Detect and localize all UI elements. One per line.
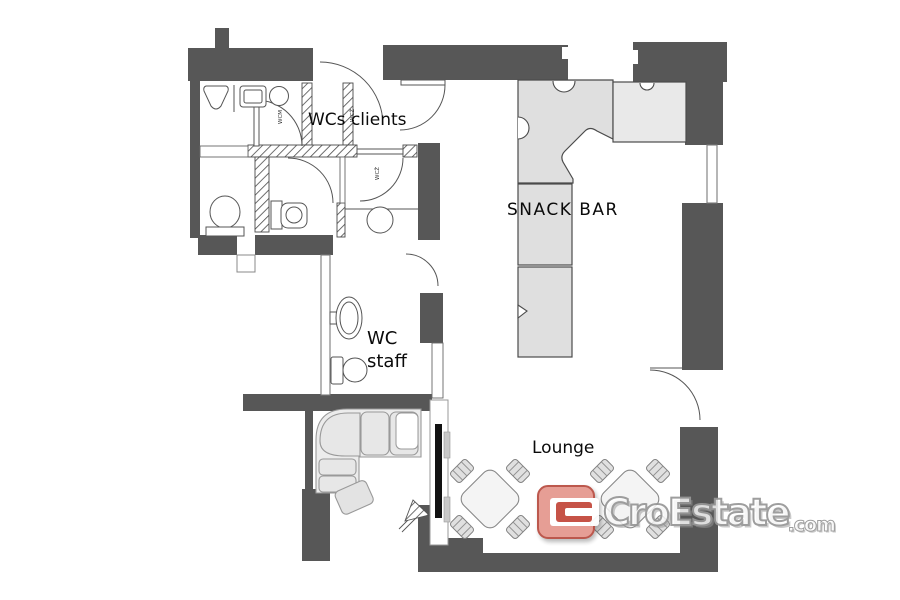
- toilet-tank: [331, 357, 343, 384]
- wall: [188, 48, 313, 81]
- wall: [477, 553, 718, 572]
- wall: [682, 203, 723, 370]
- counter-right-section: [613, 82, 686, 142]
- round-sink-icon: [367, 207, 393, 233]
- wall: [383, 45, 568, 80]
- window: [707, 145, 717, 203]
- sofa-cushion: [319, 459, 356, 475]
- door-arc: [288, 158, 333, 203]
- wall: [215, 28, 229, 50]
- label-snack-bar: SNACK BAR: [507, 200, 619, 220]
- label-wc-staff-line1: WC: [367, 327, 407, 350]
- counter-column-upper: [518, 184, 572, 265]
- toilet-tank: [271, 201, 282, 229]
- label-wc-staff: WC staff: [367, 327, 407, 373]
- washbasin-bowl: [244, 90, 262, 103]
- wall: [633, 42, 727, 82]
- label-lounge: Lounge: [532, 438, 594, 458]
- door-leaf: [357, 149, 403, 154]
- floor-plan-image: WCM WCŽ WCŽ WCs clients SNACK BAR WC sta…: [0, 0, 900, 600]
- wall: [305, 411, 313, 489]
- urinal-icon: [204, 86, 229, 109]
- wc-staff-fixtures: [330, 297, 367, 384]
- toilet-icon: [210, 196, 240, 228]
- wall: [198, 235, 333, 255]
- wall: [190, 78, 200, 238]
- glass-partition: [430, 400, 450, 545]
- shaft-box: [237, 255, 255, 272]
- dining-table-set-1: [449, 458, 530, 539]
- wall: [418, 538, 483, 572]
- counter-top-section: [518, 80, 613, 183]
- watermark-tld-text: .com: [788, 516, 835, 535]
- wall: [420, 293, 443, 343]
- croestate-watermark: CroEstate .com: [537, 484, 835, 540]
- sofa-cushion: [361, 412, 389, 455]
- door-arc: [650, 370, 700, 420]
- toilet-bowl: [286, 207, 302, 223]
- wall: [418, 143, 440, 240]
- watermark-brand-text: CroEstate: [603, 494, 789, 531]
- side-table: [396, 413, 418, 449]
- door-arc: [360, 158, 403, 201]
- wall: [302, 489, 330, 561]
- label-wcs-clients: WCs clients: [308, 110, 407, 130]
- partition-bar: [435, 424, 442, 518]
- toilet-base: [206, 227, 244, 236]
- window: [321, 255, 330, 395]
- toilet-icon: [343, 358, 367, 382]
- croestate-logo-icon: [537, 484, 599, 540]
- pedestal-sink-bowl: [340, 302, 358, 334]
- round-sink-icon: [270, 87, 289, 106]
- door-leaf: [401, 80, 445, 85]
- room-code-label: WCM: [278, 110, 284, 124]
- room-code-label: WCŽ: [373, 167, 381, 180]
- label-wc-staff-line2: staff: [367, 350, 407, 373]
- wall: [685, 82, 723, 145]
- door-arc: [406, 254, 438, 286]
